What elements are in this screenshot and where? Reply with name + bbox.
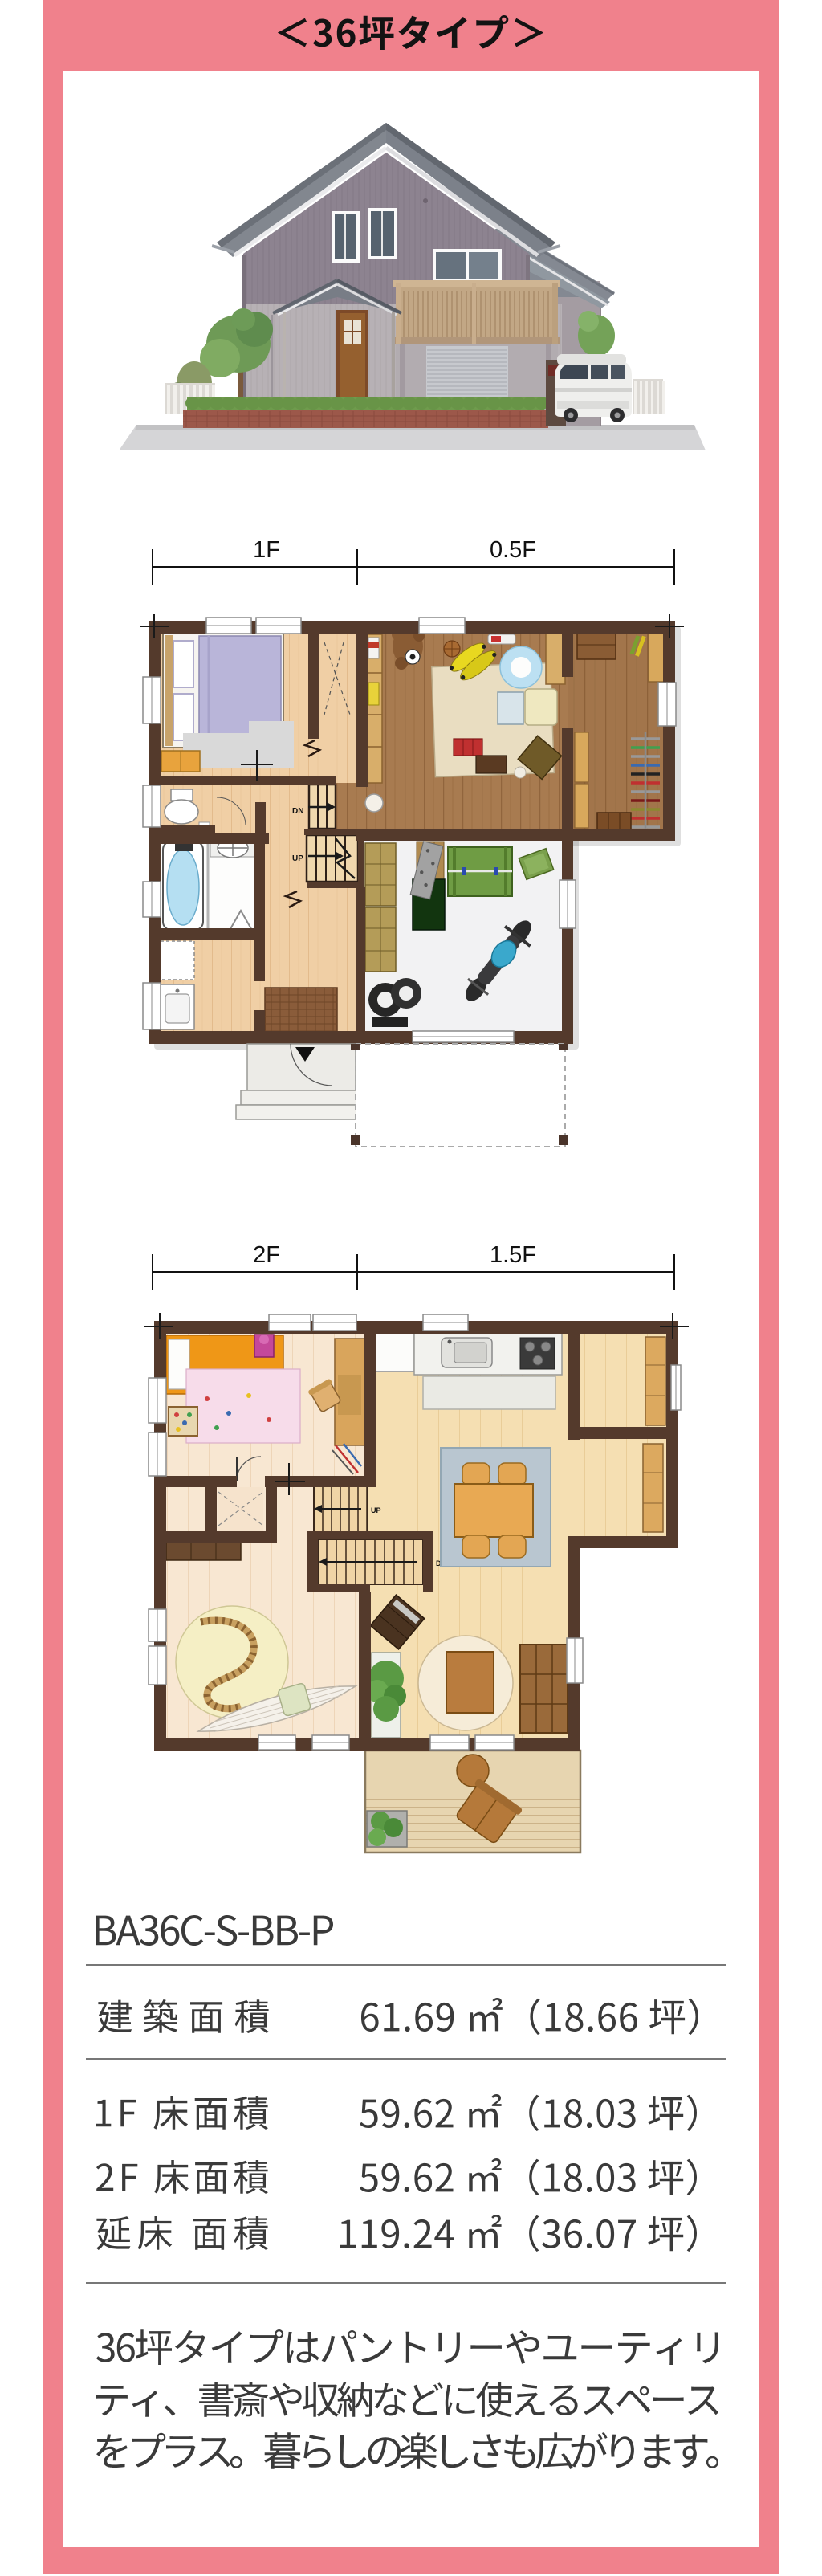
svg-text:1F: 1F	[253, 537, 280, 563]
svg-text:1.5F: 1.5F	[490, 1242, 536, 1268]
svg-text:DN: DN	[292, 807, 303, 816]
svg-text:UP: UP	[371, 1506, 381, 1514]
svg-text:2F: 2F	[253, 1242, 280, 1268]
svg-text:UP: UP	[292, 854, 303, 863]
svg-text:0.5F: 0.5F	[490, 537, 536, 563]
